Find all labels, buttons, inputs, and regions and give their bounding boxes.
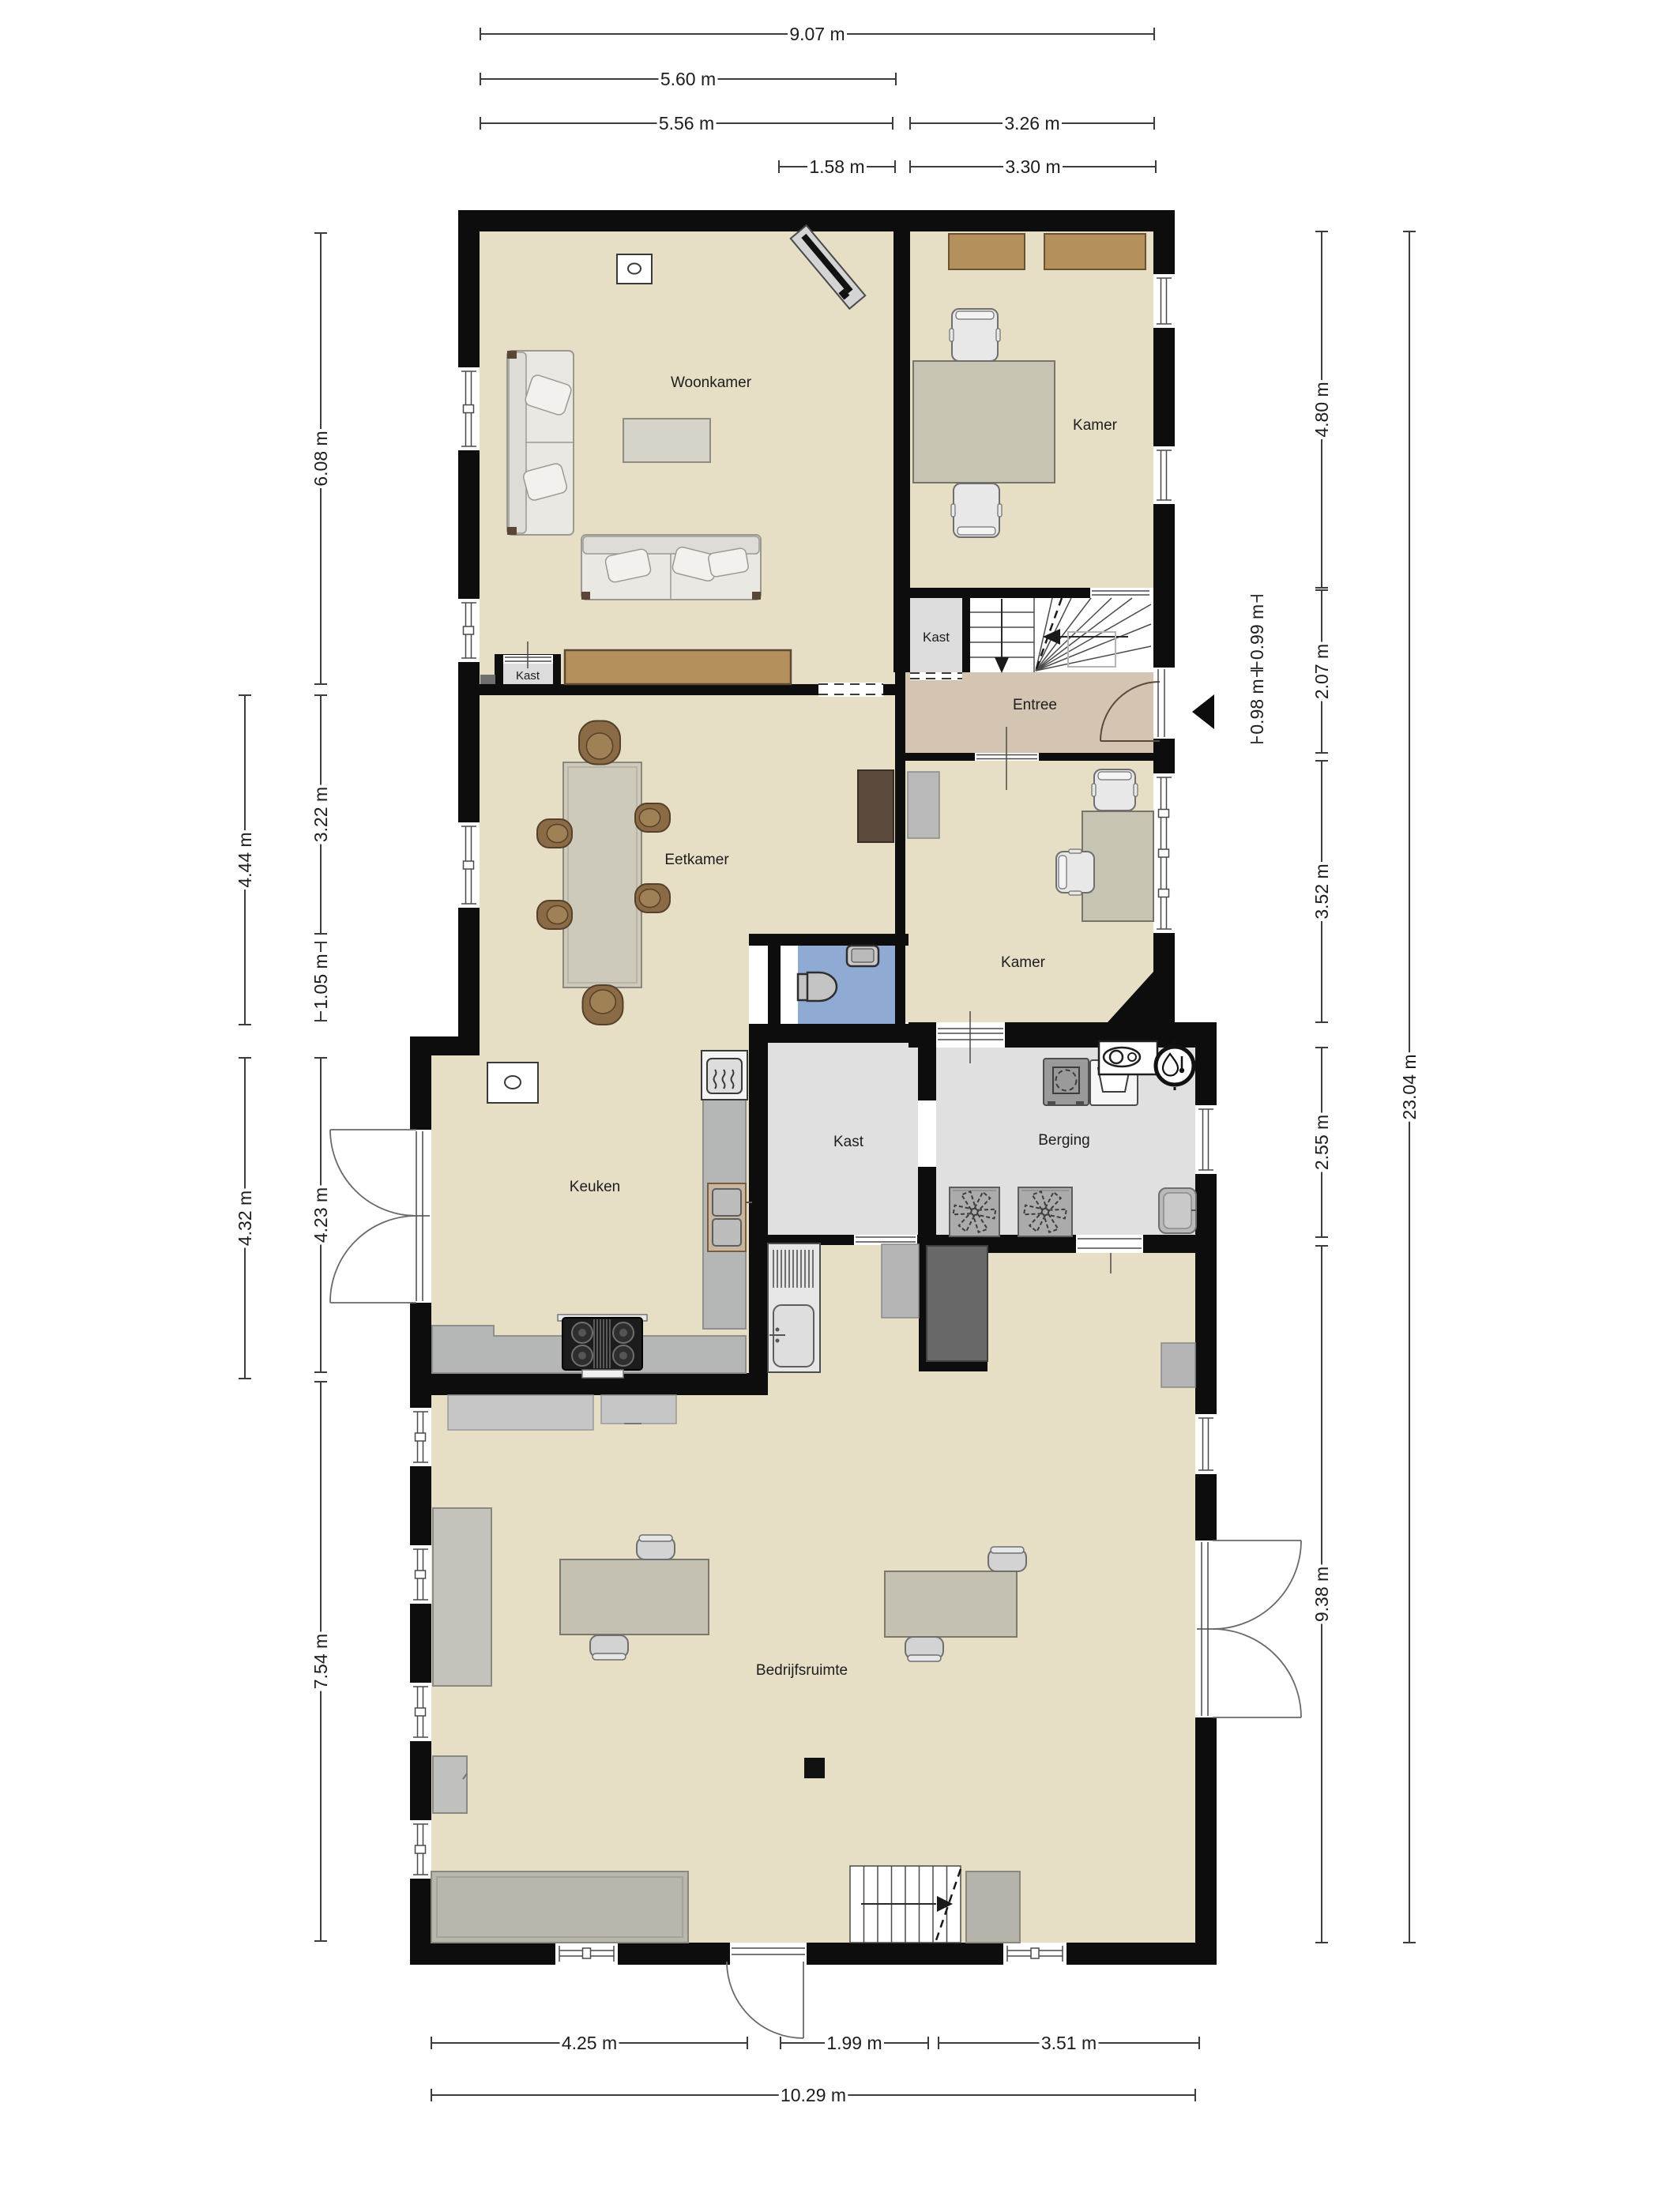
svg-text:Kast: Kast [923,630,950,645]
svg-text:2.55 m: 2.55 m [1311,1115,1332,1170]
svg-text:1.05 m: 1.05 m [310,954,331,1009]
svg-text:10.29 m: 10.29 m [781,2085,846,2105]
svg-text:Eetkamer: Eetkamer [664,852,729,868]
svg-text:3.52 m: 3.52 m [1311,863,1332,919]
svg-text:6.08 m: 6.08 m [310,431,331,486]
svg-text:Woonkamer: Woonkamer [671,374,752,391]
svg-text:Kamer: Kamer [1073,417,1118,434]
svg-text:9.07 m: 9.07 m [789,24,845,44]
svg-text:5.56 m: 5.56 m [659,113,714,134]
svg-text:5.60 m: 5.60 m [660,69,716,89]
svg-text:2.07 m: 2.07 m [1311,644,1332,699]
svg-text:1.99 m: 1.99 m [826,2033,882,2053]
svg-text:3.51 m: 3.51 m [1041,2033,1097,2053]
svg-text:4.44 m: 4.44 m [235,832,255,887]
svg-text:Kast: Kast [516,669,540,683]
svg-text:4.80 m: 4.80 m [1311,382,1332,437]
svg-text:3.22 m: 3.22 m [310,787,331,842]
svg-text:1.58 m: 1.58 m [809,156,864,177]
svg-text:4.23 m: 4.23 m [310,1187,331,1243]
svg-text:3.30 m: 3.30 m [1005,156,1060,177]
svg-text:23.04 m: 23.04 m [1399,1054,1420,1119]
svg-text:4.32 m: 4.32 m [235,1191,255,1246]
svg-text:Keuken: Keuken [570,1179,620,1195]
svg-text:3.26 m: 3.26 m [1004,113,1059,134]
svg-text:Entree: Entree [1013,697,1057,713]
svg-text:Kamer: Kamer [1001,954,1046,971]
svg-text:0.98 m: 0.98 m [1247,679,1267,734]
svg-text:0.99 m: 0.99 m [1247,604,1267,660]
svg-text:Kast: Kast [833,1134,864,1150]
svg-text:9.38 m: 9.38 m [1311,1567,1332,1622]
svg-text:7.54 m: 7.54 m [310,1634,331,1689]
svg-text:Bedrijfsruimte: Bedrijfsruimte [756,1662,848,1679]
svg-text:Berging: Berging [1038,1132,1090,1149]
svg-text:4.25 m: 4.25 m [562,2033,617,2053]
